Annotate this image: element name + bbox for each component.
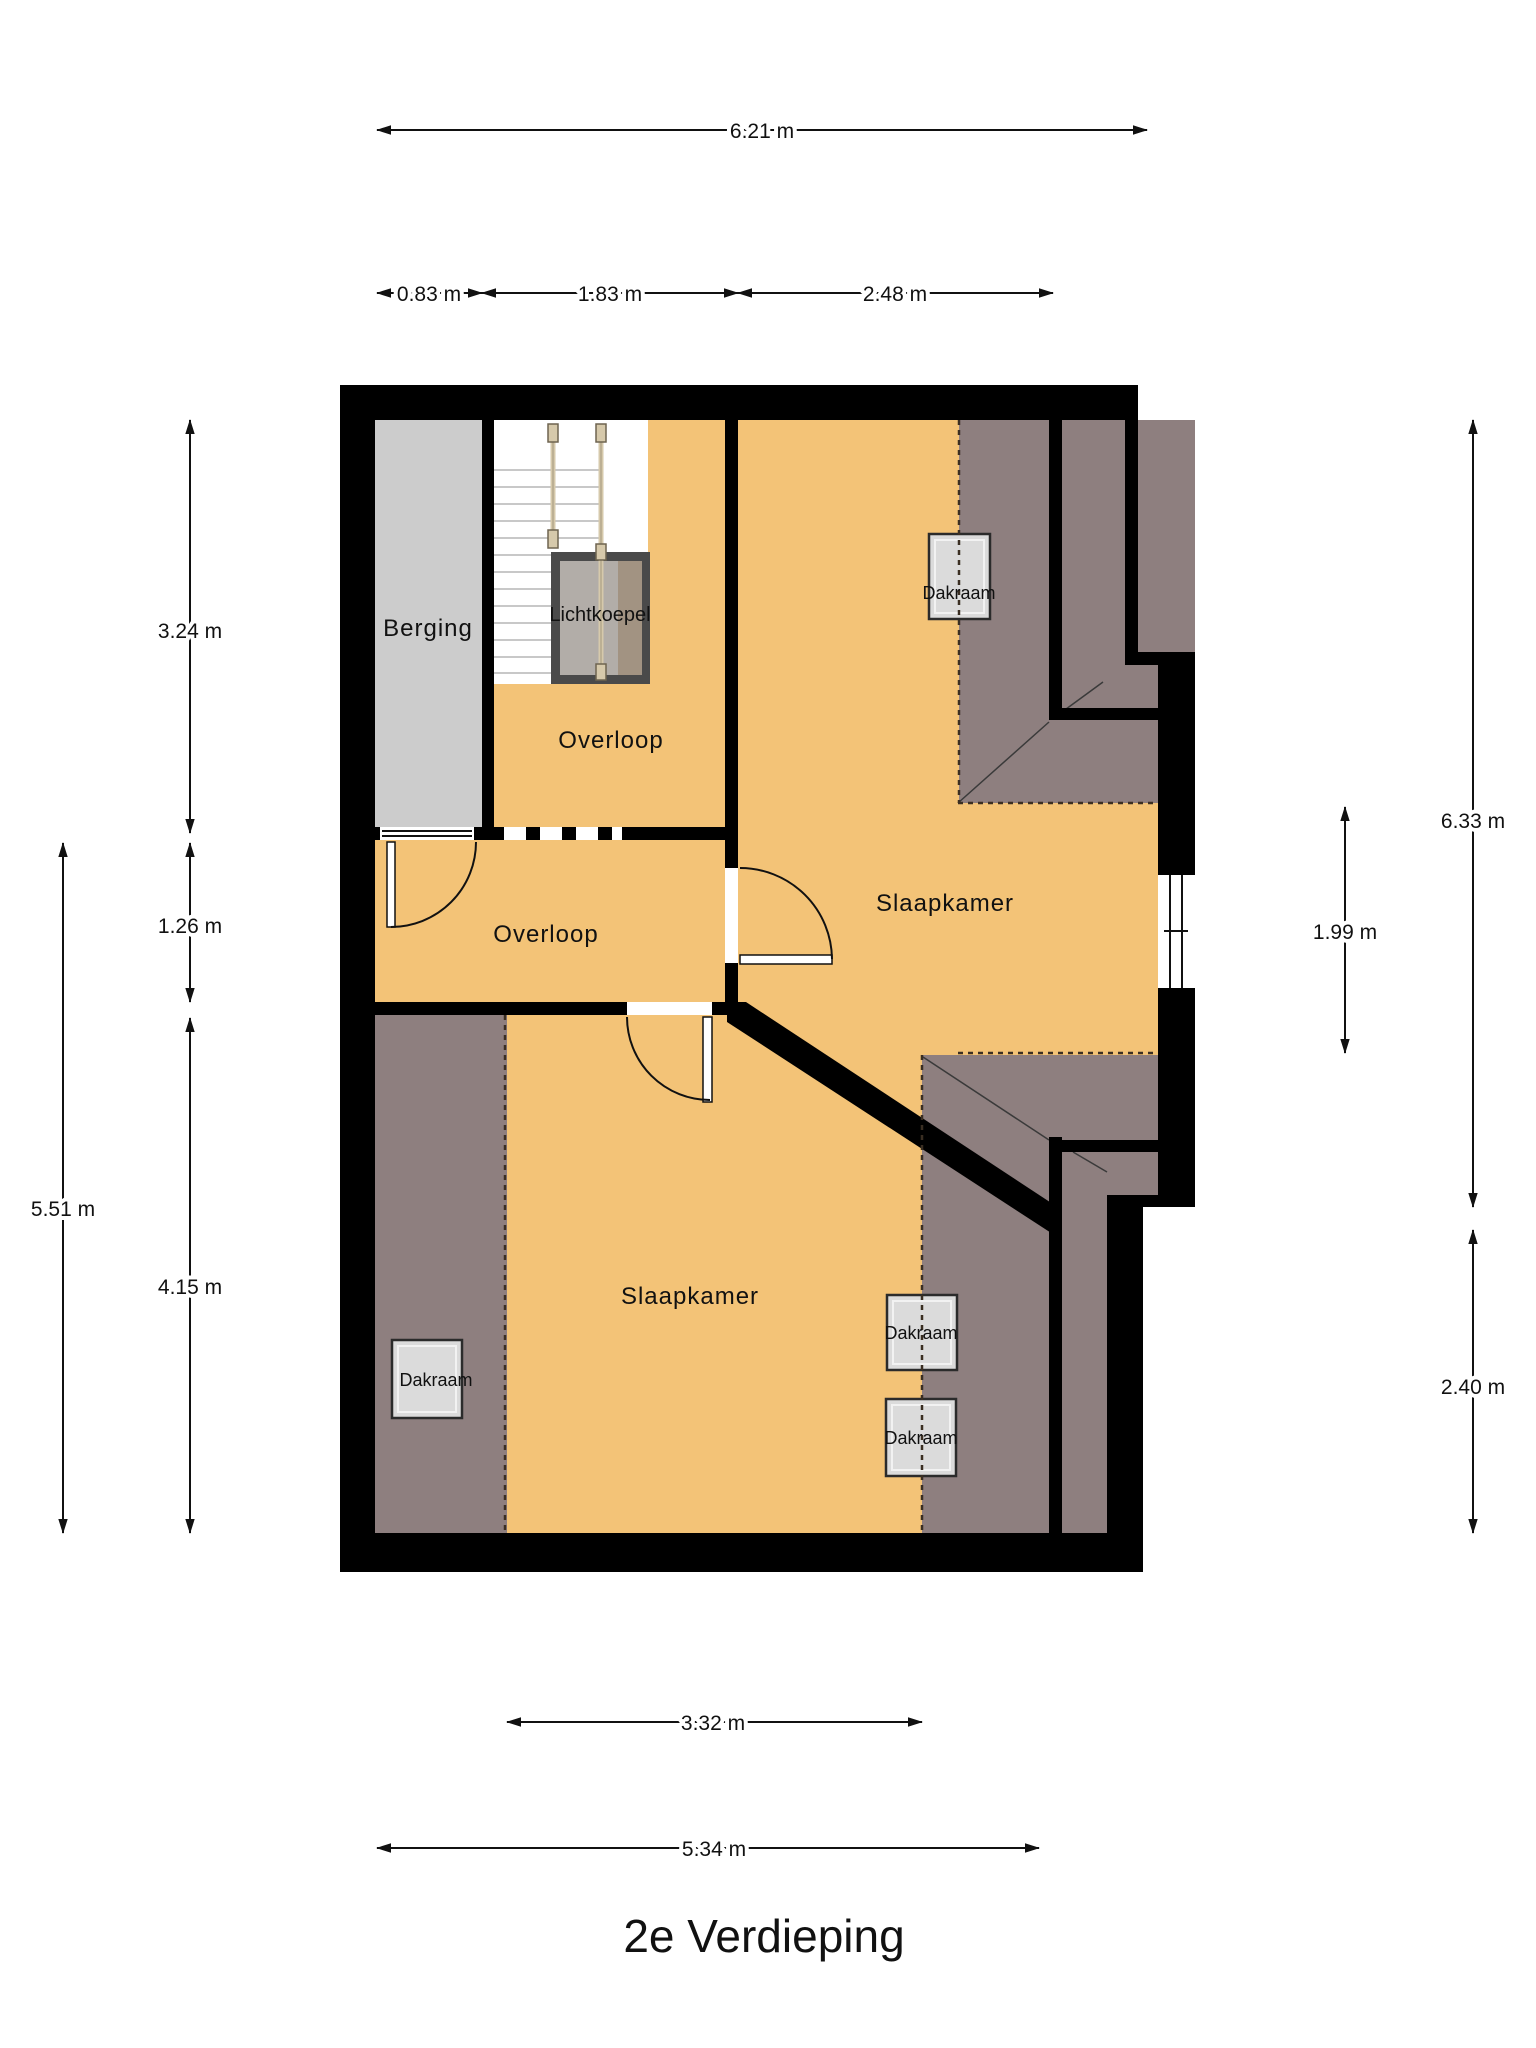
- dim-top-total: 6.21 m: [377, 120, 1147, 143]
- dim-right-lower: 2.40 m: [1441, 1230, 1505, 1533]
- dim-right-lower-label: 2.40 m: [1441, 1376, 1505, 1399]
- dim-top-stairs: 1.83 m: [482, 283, 738, 306]
- dakraam-bottom-left-label: Dakraam: [399, 1370, 472, 1390]
- dim-left-lower: 4.15 m: [158, 1018, 222, 1533]
- dim-top-berging: 0.83 m: [377, 283, 482, 306]
- overloop-bottom-label: Overloop: [493, 921, 598, 948]
- dim-top-berging-label: 0.83 m: [397, 283, 461, 306]
- dim-right-window-label: 1.99 m: [1313, 921, 1377, 944]
- floor-areas: [340, 420, 1195, 1572]
- dim-right-window: 1.99 m: [1313, 807, 1377, 1053]
- page-title: 2e Verdieping: [623, 1910, 904, 1962]
- dim-bottom-total-label: 5.34 m: [682, 1838, 746, 1861]
- berging-label: Berging: [383, 615, 473, 642]
- dim-bottom-inner-label: 3.32 m: [681, 1712, 745, 1735]
- dim-left-total-label: 5.51 m: [31, 1198, 95, 1221]
- staircase: [494, 420, 650, 684]
- lichtkoepel-label: Lichtkoepel: [549, 604, 650, 626]
- dim-top-stairs-label: 1.83 m: [578, 283, 642, 306]
- dim-left-middle-label: 1.26 m: [158, 915, 222, 938]
- dakraam-right-2-label: Dakraam: [884, 1428, 957, 1448]
- floor-plan-drawing: Berging Overloop Overloop Slaapkamer Sla…: [0, 0, 1536, 2048]
- dakraam-right-1-label: Dakraam: [884, 1323, 957, 1343]
- dakraam-top-right: [929, 534, 990, 619]
- dim-right-total: 6.33 m: [1441, 420, 1505, 1207]
- slaapkamer-bottom-label: Slaapkamer: [621, 1283, 759, 1310]
- dim-left-upper: 3.24 m: [158, 420, 222, 833]
- dim-left-total: 5.51 m: [31, 843, 95, 1533]
- overloop-top-label: Overloop: [558, 727, 663, 754]
- dim-left-middle: 1.26 m: [158, 843, 222, 1002]
- dim-bottom-inner: 3.32 m: [507, 1712, 922, 1735]
- dakraam-top-right-label: Dakraam: [922, 583, 995, 603]
- dim-right-total-label: 6.33 m: [1441, 810, 1505, 833]
- right-window: [1158, 875, 1195, 988]
- dim-top-bedroom-label: 2.48 m: [863, 283, 927, 306]
- dim-top-total-label: 6.21 m: [730, 120, 794, 143]
- dim-bottom-total: 5.34 m: [377, 1838, 1039, 1861]
- floor-plan-page: Berging Overloop Overloop Slaapkamer Sla…: [0, 0, 1536, 2048]
- dim-left-lower-label: 4.15 m: [158, 1276, 222, 1299]
- dim-top-bedroom: 2.48 m: [738, 283, 1053, 306]
- slaapkamer-right-label: Slaapkamer: [876, 890, 1014, 917]
- dim-left-upper-label: 3.24 m: [158, 620, 222, 643]
